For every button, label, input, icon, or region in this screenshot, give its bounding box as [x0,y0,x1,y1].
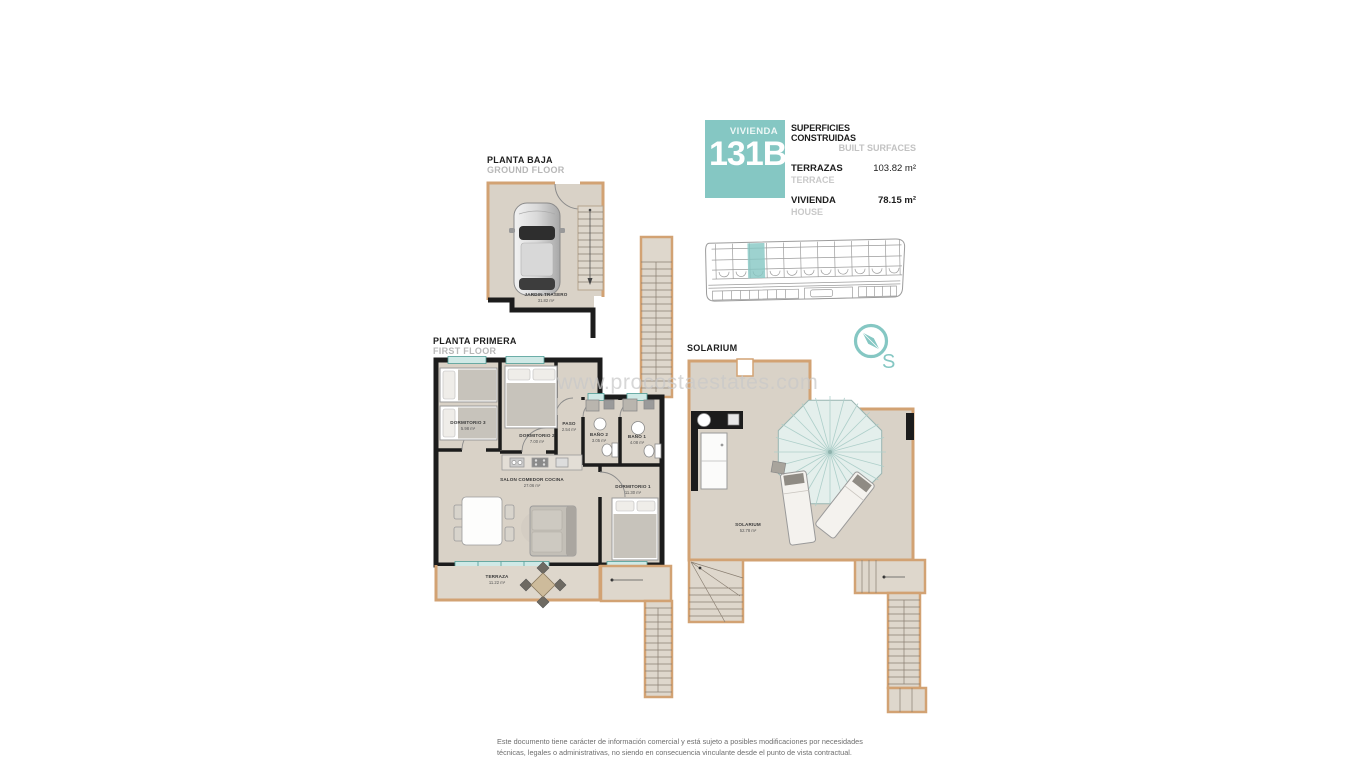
room-label-paso: PASO [562,421,576,426]
floorplan-document: VIVIENDA 131B SUPERFICIES CONSTRUIDAS BU… [0,0,1366,768]
room-area-dorm3: 5.98 m² [461,426,476,431]
double-bed-2 [505,366,557,428]
compass-south-label: S [882,351,895,373]
watermark: www.procostaestates.com [557,370,818,395]
first-floor-landing-stairs [601,566,672,697]
room-area-dorm1: 11.30 m² [625,490,642,495]
solarium-window [906,413,914,440]
room-area-dorm2: 7.00 m² [530,439,545,444]
kitchen-counter [502,455,582,470]
double-bed-1 [612,498,658,560]
solarium-stairs-right [855,560,926,712]
terrace [436,562,600,608]
room-label-salon: SALON COMEDOR COCINA [500,477,564,482]
compass-icon: S [856,326,896,374]
site-boundary [705,239,905,302]
room-area-bath2: 3.05 m² [592,438,607,443]
room-area-solarium: 52.78 m² [740,528,757,533]
room-label-garden: JARDIN TRASERO [525,292,568,297]
room-area-bath1: 4.08 m² [630,440,645,445]
solarium-plan: SOLARIUM 52.78 m² [689,359,926,712]
car-top-view [509,203,565,295]
room-label-bath1: BAÑO 1 [628,433,647,439]
room-area-salon: 27.06 m² [524,483,541,488]
room-label-dorm1: DORMITORIO 1 [615,484,651,489]
side-table [771,461,786,474]
room-label-dorm3: DORMITORIO 3 [450,420,486,425]
site-plan [705,239,905,302]
garage-stairs [578,206,603,290]
room-area-paso: 2.54 m² [562,427,577,432]
site-plan-highlight [747,243,765,278]
room-label-bath2: BAÑO 2 [590,431,609,437]
room-area-terraza: 11.22 m² [489,580,506,585]
room-label-terraza: TERRAZA [486,574,510,579]
room-label-dorm2: DORMITORIO 2 [519,433,555,438]
disclaimer-text: Este documento tiene carácter de informa… [497,737,877,759]
room-label-solarium: SOLARIUM [735,522,761,527]
first-floor-plan: DORMITORIO 3 5.98 m² DORMITORIO 2 7.00 m… [436,357,672,698]
solarium-stairs-left [689,560,743,622]
ground-floor-plan: JARDIN TRASERO 31.82 m² [488,183,603,338]
room-area-garden: 31.82 m² [538,298,555,303]
